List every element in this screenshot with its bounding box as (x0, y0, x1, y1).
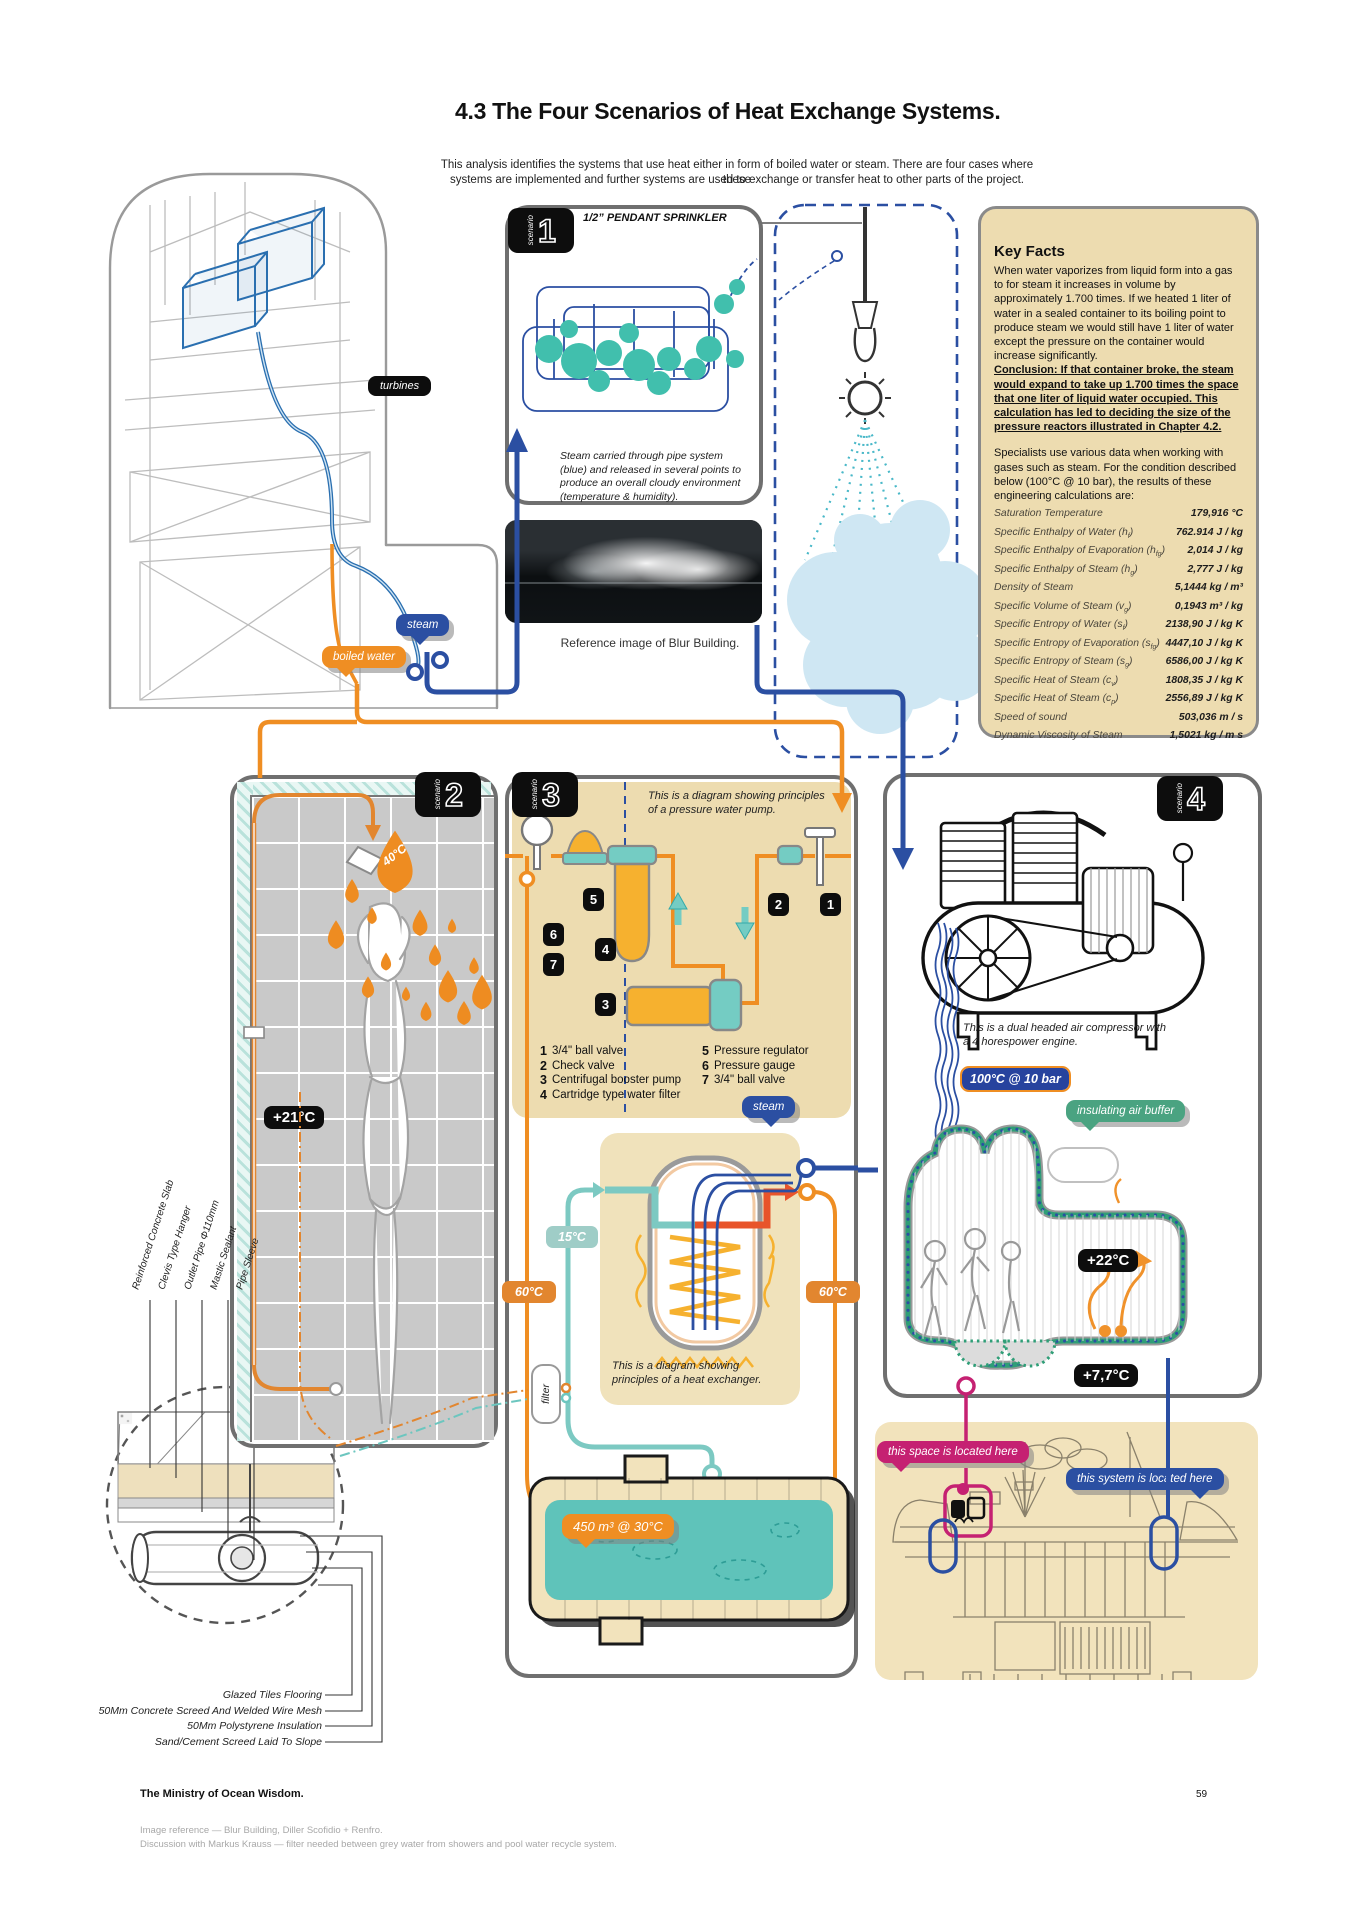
cold-temp-label: 15°C (546, 1226, 598, 1248)
legend-item: 5Pressure regulator (702, 1044, 809, 1059)
compressor-caption: This is a dual headed air compressor wit… (963, 1022, 1171, 1049)
system-highlights (930, 1517, 1177, 1572)
diagram-badge-3: 3 (595, 993, 616, 1016)
filter-capsule: filter (531, 1364, 561, 1424)
air-compressor-drawing (923, 813, 1203, 1049)
pump-caption: This is a diagram showing principles of … (648, 790, 828, 817)
key-facts-row: Specific Volume of Steam (vg) 0,1943 m³ … (994, 600, 1243, 618)
steam-bubble: steam (396, 614, 449, 636)
condition-label: 100°C @ 10 bar (962, 1068, 1069, 1090)
insulated-room (908, 1123, 1183, 1373)
outside-temp-badge: +7,7°C (1074, 1364, 1138, 1387)
pool-plan (530, 1456, 855, 1644)
legend-item: 4Cartridge type water filter (540, 1088, 681, 1103)
diagram-badge-7: 7 (543, 953, 564, 976)
scenario1-caption: Steam carried through pipe system (blue)… (560, 450, 750, 504)
hot-temp-right: 60°C (806, 1281, 860, 1303)
scenario2-badge: scenario 2 (415, 772, 481, 817)
page-number: 59 (1196, 1789, 1207, 1800)
key-facts-table: Saturation Temperature 179,916 °C Specif… (994, 507, 1243, 747)
system-location-bubble: this system is located here (1066, 1468, 1224, 1490)
boiled-water-bubble: boiled water (322, 646, 406, 668)
publisher: The Ministry of Ocean Wisdom. (140, 1788, 304, 1800)
key-facts-panel: Key Facts When water vaporizes from liqu… (978, 206, 1259, 738)
diagram-badge-4: 4 (595, 938, 616, 961)
key-facts-row: Saturation Temperature 179,916 °C (994, 507, 1243, 525)
hx-caption: This is a diagram showing principles of … (612, 1360, 782, 1387)
legend-item: 2Check valve (540, 1059, 681, 1074)
steam-cloud (787, 500, 991, 734)
key-facts-row: Speed of sound 503,036 m / s (994, 711, 1243, 729)
legend-item: 73/4" ball valve (702, 1073, 809, 1088)
pool-volume-bubble: 450 m³ @ 30°C (562, 1514, 674, 1539)
booster-pump-icon (627, 980, 741, 1030)
photo-caption: Reference image of Blur Building. (540, 636, 760, 650)
turbines-label: turbines (368, 376, 431, 396)
key-facts-para1: When water vaporizes from liquid form in… (994, 264, 1243, 363)
blur-building-photo (505, 520, 762, 623)
floor-bottom-labels: Glazed Tiles Flooring50Mm Concrete Scree… (60, 1688, 322, 1750)
legend-item: 13/4" ball valve (540, 1044, 681, 1059)
intro-line-2: systems are implemented and further syst… (432, 173, 1042, 188)
pump-legend-col1: 13/4" ball valve2Check valve3Centrifugal… (540, 1044, 681, 1102)
key-facts-row: Specific Heat of Steam (cp) 2556,89 J / … (994, 692, 1243, 710)
reference-note-1: Image reference — Blur Building, Diller … (140, 1824, 383, 1838)
floor-layer-label: Sand/Cement Screed Laid To Slope (60, 1735, 322, 1751)
key-facts-title: Key Facts (994, 243, 1243, 260)
steam-bubble-hx: steam (742, 1096, 795, 1118)
steam-blobs (535, 279, 745, 395)
key-facts-row: Specific Enthalpy of Water (hf) 762.914 … (994, 526, 1243, 544)
diagram-badge-1: 1 (820, 893, 841, 916)
key-facts-row: Specific Enthalpy of Evaporation (hfg) 2… (994, 544, 1243, 562)
key-facts-row: Specific Entropy of Steam (sg) 6586,00 J… (994, 655, 1243, 673)
diagram-badge-6: 6 (543, 923, 564, 946)
shower-pipe (244, 795, 381, 1395)
key-facts-row: Specific Enthalpy of Steam (hg) 2,777 J … (994, 563, 1243, 581)
room-temp-badge: +21°C (264, 1106, 324, 1129)
air-buffer-bubble: insulating air buffer (1066, 1100, 1185, 1122)
scenario1-badge: scenario 1 (508, 208, 574, 253)
space-location-bubble: this space is located here (877, 1441, 1029, 1463)
floor-layer-label: 50Mm Polystyrene Insulation (60, 1719, 322, 1735)
reference-note-2: Discussion with Markus Krauss — filter n… (140, 1838, 617, 1852)
scenario4-badge: scenario 4 (1157, 776, 1223, 821)
floor-layer-label: 50Mm Concrete Screed And Welded Wire Mes… (60, 1704, 322, 1720)
key-facts-para2: Specialists use various data when workin… (994, 446, 1243, 503)
legend-item: 3Centrifugal booster pump (540, 1073, 681, 1088)
hot-temp-left: 60°C (502, 1281, 556, 1303)
pump-legend-col2: 5Pressure regulator6Pressure gauge73/4" … (702, 1044, 809, 1088)
key-facts-row: Density of Steam 5,1444 kg / m³ (994, 581, 1243, 599)
key-facts-row: Specific Entropy of Evaporation (sfg) 44… (994, 637, 1243, 655)
turbine-boxes (183, 208, 324, 348)
document-page: 4.3 The Four Scenarios of Heat Exchange … (0, 0, 1358, 1920)
key-facts-row: Specific Entropy of Water (sf) 2138,90 J… (994, 618, 1243, 636)
floor-layer-label: Glazed Tiles Flooring (60, 1688, 322, 1704)
diagram-badge-2: 2 (768, 893, 789, 916)
legend-item: 6Pressure gauge (702, 1059, 809, 1074)
page-title: 4.3 The Four Scenarios of Heat Exchange … (455, 98, 1000, 125)
shower-head-icon (347, 847, 382, 874)
inside-temp-badge: +22°C (1078, 1249, 1138, 1272)
scenario3-badge: scenario 3 (512, 772, 578, 817)
key-facts-conclusion: Conclusion: If that container broke, the… (994, 363, 1243, 434)
scenario4-art (883, 773, 1262, 1398)
space-highlight (945, 1483, 991, 1536)
check-valve-icon (778, 846, 802, 864)
sprinkler-label: 1/2” PENDANT SPRINKLER (583, 212, 727, 224)
diagram-badge-5: 5 (583, 888, 604, 911)
key-facts-row: Dynamic Viscosity of Steam 1,5021 kg / m… (994, 729, 1243, 747)
key-facts-row: Specific Heat of Steam (cv) 1808,35 J / … (994, 674, 1243, 692)
